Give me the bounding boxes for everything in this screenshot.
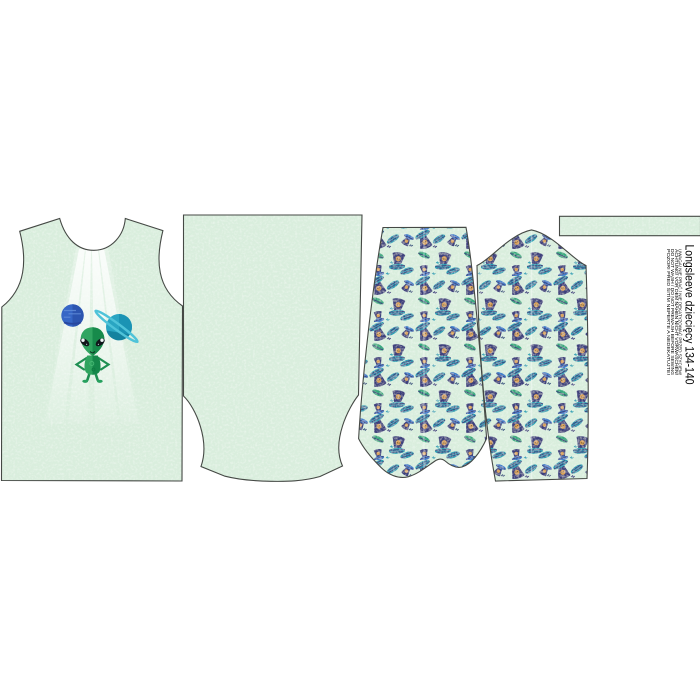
svg-text:POZOR! PŘED ŠITÍM NEPERTE A NE: POZOR! PŘED ŠITÍM NEPERTE A NEDEKATUJTE! [666,249,671,375]
svg-text:Longsleeve dziecięcy 134-140: Longsleeve dziecięcy 134-140 [683,245,697,385]
